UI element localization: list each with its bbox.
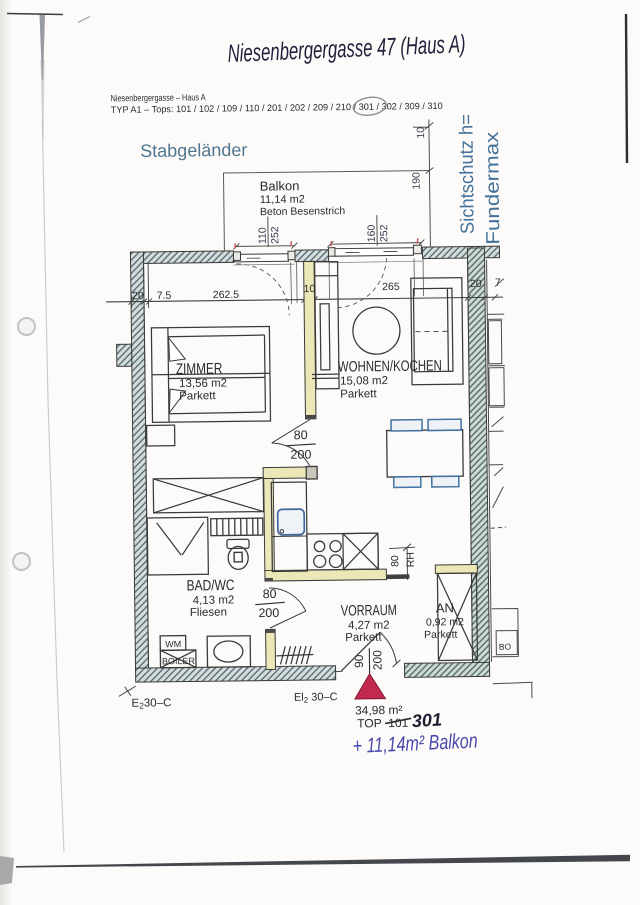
svg-text:10: 10 (303, 283, 315, 295)
svg-text:RH: RH (405, 552, 417, 567)
svg-text:Parkett: Parkett (424, 629, 457, 641)
svg-text:AN: AN (436, 600, 454, 615)
svg-text:BOILER: BOILER (162, 656, 196, 666)
svg-text:El2 30–C: El2 30–C (294, 691, 338, 705)
svg-text:252: 252 (269, 226, 281, 244)
svg-text:Stabgeländer: Stabgeländer (140, 140, 247, 161)
svg-text:Parkett: Parkett (340, 388, 377, 400)
svg-text:200: 200 (258, 606, 279, 620)
svg-text:80: 80 (294, 428, 308, 442)
svg-text:Parkett: Parkett (179, 390, 216, 402)
svg-text:0,92 m2: 0,92 m2 (426, 616, 464, 628)
svg-text:Parkett: Parkett (345, 632, 382, 644)
svg-text:4,27 m2: 4,27 m2 (348, 620, 390, 633)
svg-text:265: 265 (382, 281, 400, 293)
svg-text:10: 10 (415, 127, 427, 139)
svg-text:20: 20 (470, 278, 482, 290)
svg-text:190: 190 (410, 172, 422, 190)
svg-text:E230–C: E230–C (131, 697, 171, 710)
svg-text:WM: WM (165, 639, 181, 649)
svg-text:BAD/WC: BAD/WC (186, 577, 234, 595)
svg-text:BO: BO (499, 642, 512, 652)
svg-text:Niesenbergergasse – Haus A: Niesenbergergasse – Haus A (111, 92, 207, 103)
svg-text:WOHNEN/KOCHEN: WOHNEN/KOCHEN (338, 357, 442, 375)
svg-text:4,13 m2: 4,13 m2 (193, 594, 235, 607)
svg-text:7: 7 (495, 277, 501, 289)
svg-text:262.5: 262.5 (213, 289, 240, 301)
svg-text:Beton Besenstrich: Beton Besenstrich (260, 205, 346, 218)
svg-text:Sichtschutz h=: Sichtschutz h= (456, 114, 478, 234)
svg-text:VORRAUM: VORRAUM (341, 602, 397, 620)
svg-text:20: 20 (132, 290, 144, 302)
svg-text:Fliesen: Fliesen (190, 607, 227, 619)
svg-text:200: 200 (290, 447, 311, 461)
svg-text:301: 301 (411, 709, 442, 731)
svg-text:ZIMMER: ZIMMER (176, 361, 223, 379)
svg-text:80: 80 (389, 555, 401, 567)
svg-text:200: 200 (370, 650, 384, 671)
svg-text:TOP: TOP (357, 716, 382, 730)
svg-text:110: 110 (257, 227, 269, 244)
svg-text:11,14 m2: 11,14 m2 (260, 194, 305, 207)
svg-text:80: 80 (263, 587, 277, 601)
svg-text:7.5: 7.5 (157, 290, 172, 302)
svg-text:15,08 m2: 15,08 m2 (340, 375, 388, 388)
svg-text:160: 160 (366, 224, 378, 242)
svg-text:Balkon: Balkon (260, 178, 300, 193)
svg-text:90: 90 (352, 654, 366, 668)
svg-text:13,56 m2: 13,56 m2 (179, 378, 227, 391)
svg-text:252: 252 (378, 224, 390, 242)
svg-text:Fundermax: Fundermax (482, 131, 504, 245)
